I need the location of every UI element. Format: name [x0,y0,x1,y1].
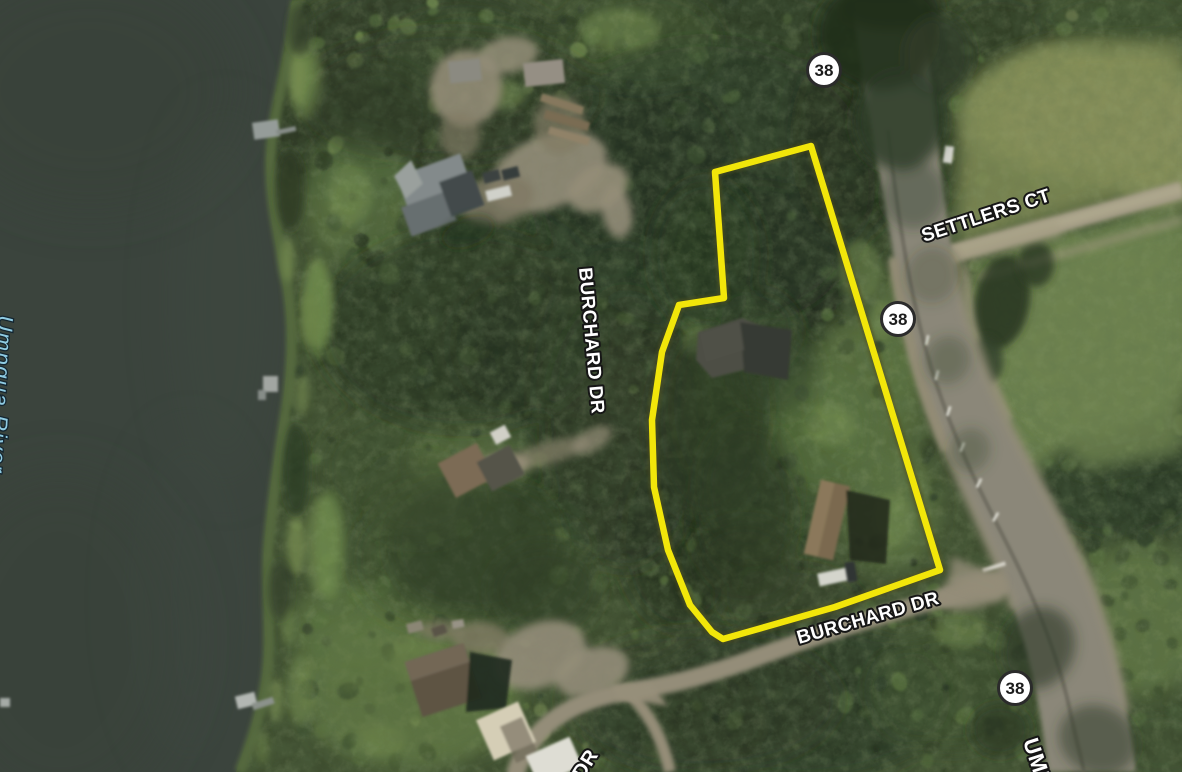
svg-text:38: 38 [1006,679,1025,698]
svg-text:38: 38 [889,310,908,329]
svg-text:38: 38 [815,61,834,80]
